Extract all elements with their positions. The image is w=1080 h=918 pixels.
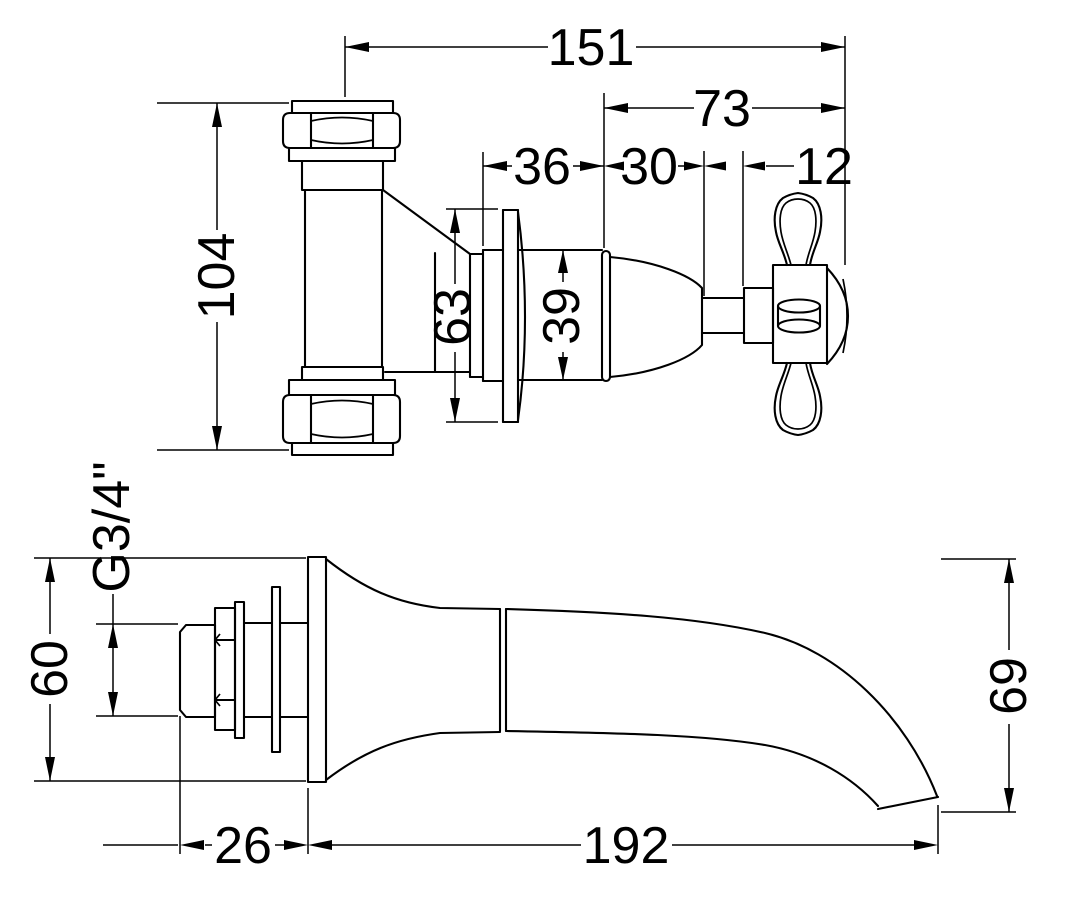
spout-body (326, 559, 938, 809)
dim-label-69: 69 (980, 657, 1038, 715)
spout-side-view (180, 557, 938, 809)
wall-flange (503, 210, 525, 422)
technical-drawing-page: 151 73 36 30 (0, 0, 1080, 918)
dim-label-30: 30 (620, 138, 678, 196)
dim-label-thread: G3/4" (83, 461, 141, 592)
dim-flange-to-head: 36 (483, 138, 604, 246)
handle-upper-arm (775, 193, 822, 265)
dim-label-39: 39 (533, 287, 591, 345)
dim-label-192: 192 (583, 817, 670, 875)
dim-label-26: 26 (214, 817, 272, 875)
dim-spout-drop: 69 (941, 559, 1038, 812)
cross-handle (773, 193, 848, 435)
dim-label-12: 12 (795, 138, 853, 196)
dim-label-60: 60 (21, 640, 79, 698)
dim-label-36: 36 (513, 138, 571, 196)
dim-label-151: 151 (548, 19, 635, 77)
tail-connector (180, 587, 308, 752)
dim-label-104: 104 (188, 233, 246, 320)
dim-backplate-diameter: 60 (21, 558, 306, 781)
dimensions: 151 73 36 30 (21, 19, 1038, 875)
dim-label-73: 73 (693, 80, 751, 138)
dim-overall-projection: 151 (345, 19, 845, 265)
handle-hub (773, 265, 827, 363)
handle-lower-arm (775, 363, 822, 435)
dim-thread-size: G3/4" (83, 461, 178, 716)
dim-spout-reach: 192 (308, 805, 938, 875)
tap-dimension-drawing: 151 73 36 30 (0, 0, 1080, 918)
handle-spindle (702, 288, 773, 343)
handle-dome-cap (827, 268, 848, 364)
dim-flange-diameter: 63 (424, 209, 498, 422)
dim-head-length: 30 (604, 138, 704, 196)
transition-cone (383, 190, 503, 381)
dim-tee-height: 104 (157, 103, 289, 450)
dim-label-63: 63 (424, 288, 482, 346)
tee-fitting (283, 101, 400, 455)
wall-plate (308, 557, 326, 782)
dim-head-diameter: 39 (533, 250, 591, 380)
dim-tail-length: 26 (103, 716, 308, 875)
